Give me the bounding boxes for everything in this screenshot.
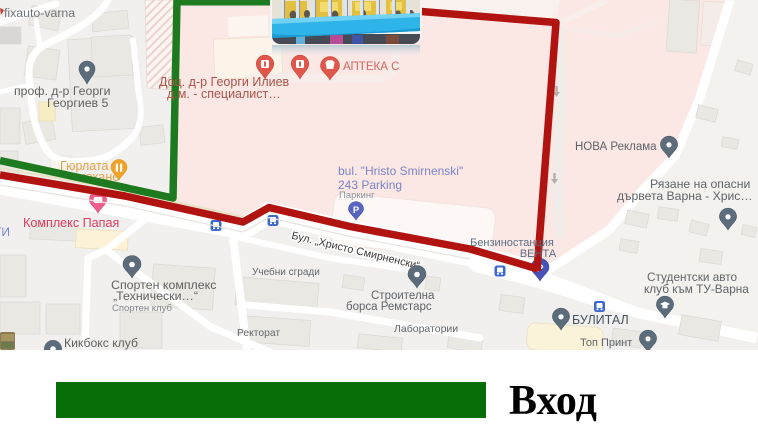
svg-text:Топ Принт: Топ Принт bbox=[580, 337, 632, 349]
svg-text:дървета Варна - Хрис…: дървета Варна - Хрис… bbox=[617, 189, 753, 203]
svg-text:„Технически…“: „Технически…“ bbox=[113, 289, 198, 303]
svg-text:bul. "Hristo Smirnenski": bul. "Hristo Smirnenski" bbox=[338, 164, 463, 178]
svg-text:Лаборатории: Лаборатории bbox=[394, 323, 458, 335]
svg-text:Кикбокс клуб: Кикбокс клуб bbox=[64, 336, 138, 350]
svg-text:Спортен клуб: Спортен клуб bbox=[112, 303, 172, 314]
svg-text:Ректорат: Ректорат bbox=[237, 328, 280, 339]
svg-text:Учебни сгради: Учебни сгради bbox=[252, 266, 320, 278]
svg-text:Паркинг: Паркинг bbox=[339, 190, 375, 201]
svg-text:ТИ: ТИ bbox=[0, 225, 10, 239]
svg-text:fixauto-varna: fixauto-varna bbox=[4, 6, 75, 20]
svg-text:борса Ремстарс: борса Ремстарс bbox=[346, 301, 432, 313]
svg-text:НОВА Реклама: НОВА Реклама bbox=[575, 141, 657, 153]
svg-text:ВЕНТА: ВЕНТА bbox=[520, 248, 557, 260]
svg-text:Георгиев 5: Георгиев 5 bbox=[47, 96, 108, 110]
svg-text:АПТЕКА С: АПТЕКА С bbox=[343, 61, 399, 73]
svg-text:клуб към ТУ-Варна: клуб към ТУ-Варна bbox=[644, 282, 749, 296]
svg-text:БУЛИТАЛ: БУЛИТАЛ bbox=[572, 313, 629, 327]
svg-text:P: P bbox=[353, 205, 360, 216]
svg-text:д.м. - специалист…: д.м. - специалист… bbox=[167, 87, 281, 101]
svg-text:Комплекс Папая: Комплекс Папая bbox=[23, 216, 119, 230]
